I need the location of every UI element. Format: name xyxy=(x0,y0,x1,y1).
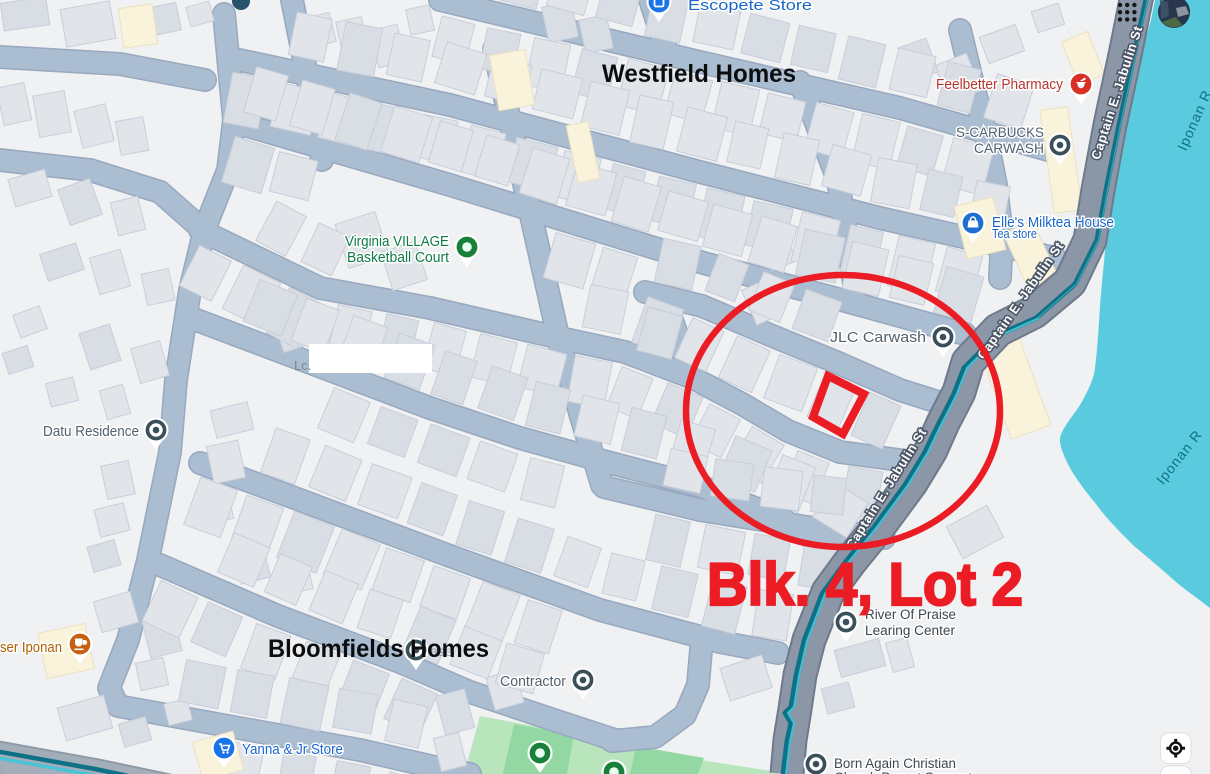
svg-text:Yanna & Jr Store: Yanna & Jr Store xyxy=(242,741,343,758)
svg-text:Lc.: Lc. xyxy=(294,358,311,373)
svg-text:Born Again Christian: Born Again Christian xyxy=(834,756,956,771)
svg-text:Learing Center: Learing Center xyxy=(865,623,956,638)
svg-text:Tea store: Tea store xyxy=(992,227,1037,241)
svg-text:Blk. 4, Lot 2: Blk. 4, Lot 2 xyxy=(707,551,1023,618)
svg-text:Virginia VILLAGE: Virginia VILLAGE xyxy=(345,234,449,250)
svg-text:Escopete Store: Escopete Store xyxy=(688,0,812,14)
svg-text:JLC Carwash: JLC Carwash xyxy=(830,330,926,346)
svg-text:Datu Residence: Datu Residence xyxy=(43,423,139,440)
svg-text:Church Parent Support: Church Parent Support xyxy=(834,770,972,774)
svg-text:Contractor: Contractor xyxy=(500,673,566,690)
svg-text:Bloomfields Homes: Bloomfields Homes xyxy=(268,635,489,663)
svg-text:S-CARBUCKS: S-CARBUCKS xyxy=(956,124,1044,140)
svg-text:Basketball Court: Basketball Court xyxy=(347,250,449,266)
svg-text:Westfield Homes: Westfield Homes xyxy=(602,60,796,88)
svg-text:CARWASH: CARWASH xyxy=(974,140,1044,156)
svg-text:Feelbetter Pharmacy: Feelbetter Pharmacy xyxy=(936,77,1064,93)
svg-text:ser Iponan: ser Iponan xyxy=(0,639,62,656)
